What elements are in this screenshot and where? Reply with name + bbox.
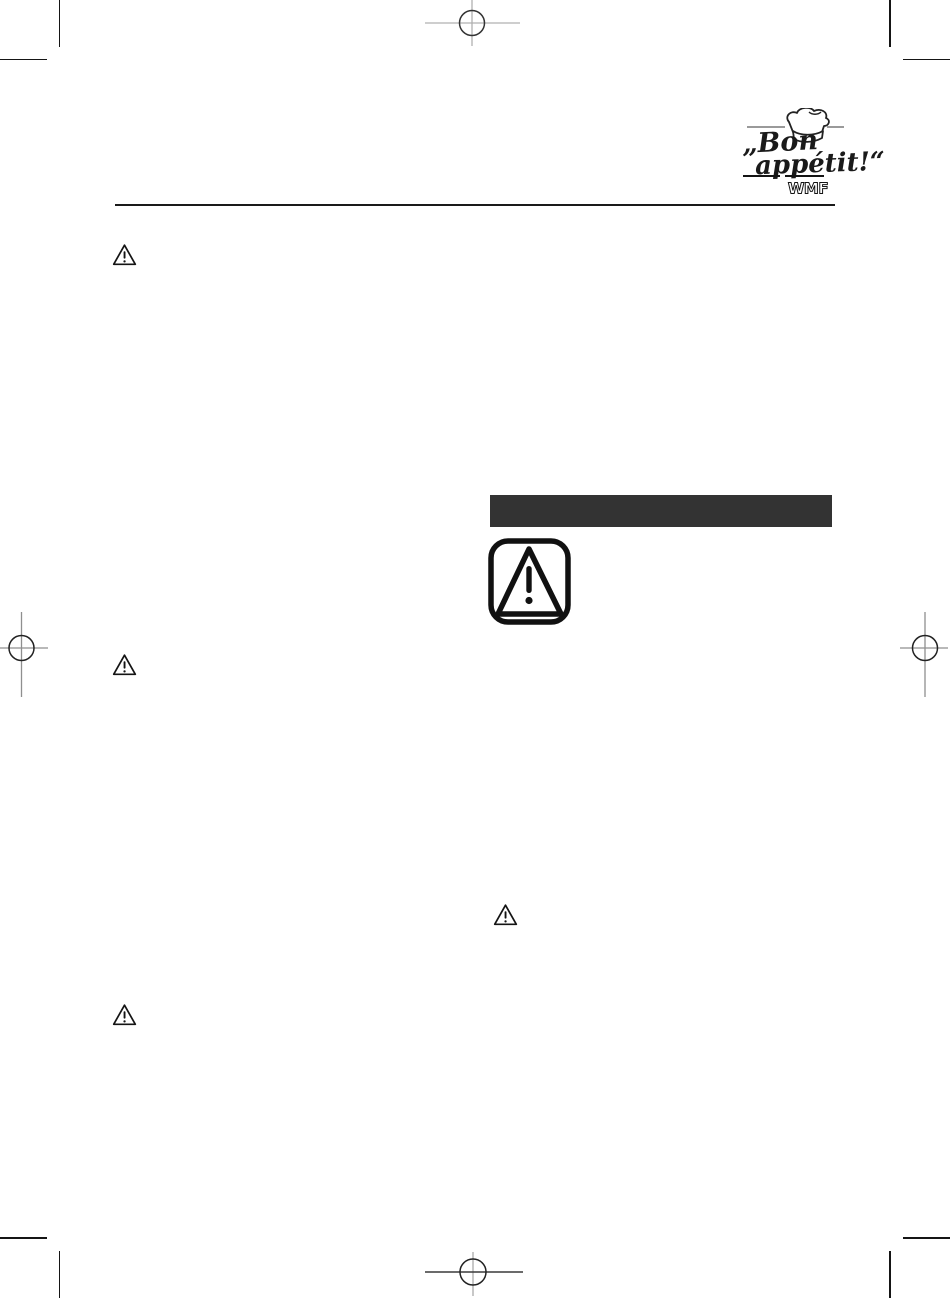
- trim-mark-top-left-horizontal: [0, 59, 47, 61]
- trim-mark-bottom-right-horizontal: [903, 1237, 950, 1239]
- warning-triangle-icon-2: [112, 653, 137, 677]
- registration-mark-top-center: [420, 0, 525, 50]
- warning-triangle-icon-4: [493, 903, 518, 927]
- registration-mark-left-middle: [0, 607, 52, 699]
- trim-mark-bottom-right-vertical: [889, 1251, 891, 1298]
- trim-mark-bottom-left-vertical: [59, 1251, 61, 1298]
- trim-mark-bottom-left-horizontal: [0, 1237, 47, 1239]
- warning-triangle-icon-1: [112, 243, 137, 267]
- manual-page: „Bon appétit!“ WMF: [0, 0, 950, 1298]
- wmf-wordmark: WMF: [786, 177, 830, 198]
- logo-underline-left: [743, 175, 780, 177]
- registration-mark-right-middle: [898, 607, 950, 699]
- header-rule: [115, 204, 835, 206]
- brand-logo: „Bon appétit!“ WMF: [740, 106, 852, 201]
- section-header-bar: [490, 495, 832, 527]
- warning-sign-icon: [488, 538, 571, 625]
- trim-mark-top-right-horizontal: [903, 59, 950, 61]
- trim-mark-top-right-vertical: [889, 0, 891, 47]
- warning-triangle-icon-3: [112, 1003, 137, 1027]
- registration-mark-bottom-center: [420, 1248, 530, 1298]
- trim-mark-top-left-vertical: [59, 0, 61, 47]
- wmf-wordmark-text: WMF: [788, 180, 828, 198]
